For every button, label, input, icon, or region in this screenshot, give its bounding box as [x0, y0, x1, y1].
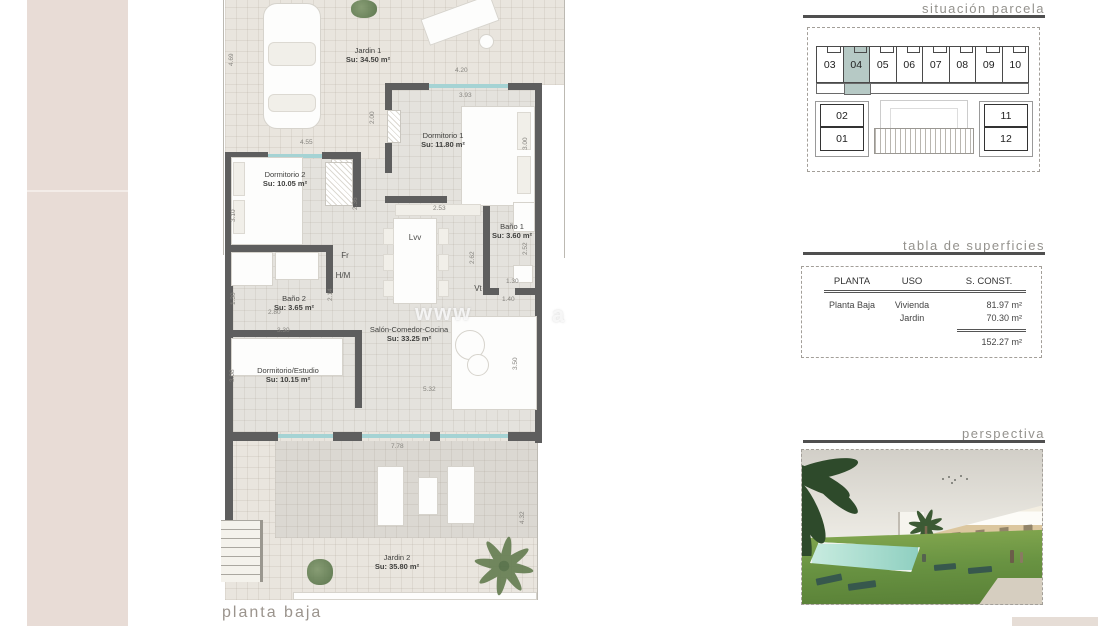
room-area: Su: 3.60 m²: [472, 231, 552, 240]
wall: [225, 330, 362, 337]
room-area: Su: 34.50 m²: [323, 55, 413, 64]
dim-label: 2.00: [370, 111, 377, 124]
wall: [228, 432, 278, 441]
unit-01: 01: [820, 127, 864, 151]
dim-label: 7.78: [391, 444, 404, 451]
unit-number: 03: [824, 59, 836, 71]
room-name: Jardin 1: [323, 46, 413, 55]
unit-04-extension: [844, 83, 871, 95]
wall: [483, 203, 490, 293]
table-cell: 70.30 m²: [932, 313, 1022, 323]
room-name: Dormitorio 1: [398, 131, 488, 140]
terrace-zone: [275, 441, 537, 538]
unit-12: 12: [984, 127, 1028, 151]
surfaces-table: PLANTA USO S. CONST. Planta Baja Viviend…: [801, 266, 1042, 358]
room-label-bano2: Baño 2 Su: 3.65 m²: [249, 294, 339, 313]
table-cell: Planta Baja: [816, 300, 888, 310]
site-plan: 03 04 05 06 07 08 09 10 02 01 11 12: [807, 27, 1040, 172]
person: [1020, 552, 1023, 563]
window: [440, 434, 508, 438]
chair: [438, 254, 449, 271]
dining-table: [393, 218, 437, 304]
plan-title: planta baja: [222, 604, 322, 622]
dim-label: 2.62: [470, 251, 477, 264]
room-area: Su: 35.80 m²: [352, 562, 442, 571]
unit-09: 09: [975, 47, 1002, 82]
unit-number: 11: [1001, 110, 1012, 122]
unit-row: 03 04 05 06 07 08 09 10: [816, 46, 1029, 83]
unit-number: 05: [877, 59, 889, 71]
table-cell: Vivienda: [887, 300, 937, 310]
watermark: www: [415, 300, 472, 326]
wall: [508, 432, 542, 441]
shower: [231, 252, 273, 286]
wall: [225, 245, 329, 252]
fixture-label-hm: H/M: [328, 271, 358, 280]
dim-label: 2.36: [353, 197, 360, 210]
coffee-table: [467, 354, 489, 376]
chair: [438, 280, 449, 297]
unit-10: 10: [1002, 47, 1029, 82]
dim-label: 1.40: [502, 297, 515, 304]
fixture-label-vt: Vt: [463, 284, 493, 293]
person: [1010, 550, 1014, 563]
dim-label: 3.00: [523, 137, 530, 150]
wall: [385, 90, 392, 110]
room-name: Dormitorio 2: [240, 170, 330, 179]
sun-lounger: [377, 466, 404, 526]
room-label-dormitorio1: Dormitorio 1 Su: 11.80 m²: [398, 131, 488, 150]
unit-11: 11: [984, 104, 1028, 127]
wall: [385, 196, 447, 203]
table-header-uso: USO: [887, 276, 937, 287]
dim-label: 3.93: [459, 93, 472, 100]
room-name: Baño 2: [249, 294, 339, 303]
dim-label: 2.53: [433, 206, 446, 213]
room-area: Su: 3.65 m²: [249, 303, 339, 312]
palm-tree-icon: [470, 532, 538, 600]
perspective-render: [801, 449, 1043, 605]
unit-number: 12: [1000, 133, 1012, 145]
unit-02: 02: [820, 104, 864, 127]
table-header-planta: PLANTA: [816, 276, 888, 287]
banana-leaves-icon: [801, 452, 880, 556]
unit-number: 07: [930, 59, 942, 71]
watermark: a: [552, 302, 566, 328]
unit-number: 08: [956, 59, 968, 71]
wall: [385, 143, 392, 173]
window: [429, 84, 508, 88]
room-label-jardin2: Jardin 2 Su: 35.80 m²: [352, 553, 442, 572]
chair: [383, 254, 394, 271]
car-windshield: [268, 42, 316, 66]
chair: [438, 228, 449, 245]
unit-06: 06: [896, 47, 923, 82]
table-cell: Jardin: [887, 313, 937, 323]
section-underline: [803, 440, 1045, 443]
dim-label: 3.30: [277, 328, 290, 335]
unit-08: 08: [949, 47, 976, 82]
unit-07: 07: [922, 47, 949, 82]
unit-number: 10: [1009, 59, 1021, 71]
room-label-bano1: Baño 1 Su: 3.60 m²: [472, 222, 552, 241]
wall: [430, 432, 440, 441]
room-area: Su: 10.05 m²: [240, 179, 330, 188]
plant: [351, 0, 377, 18]
room-name: Jardin 2: [352, 553, 442, 562]
dim-label: 1.30: [506, 279, 519, 286]
wall: [333, 432, 362, 441]
room-label-salon: Salón-Comedor-Cocina Su: 33.25 m²: [364, 325, 454, 344]
unit-number: 09: [983, 59, 995, 71]
dim-label: 5.32: [423, 387, 436, 394]
room-area: Su: 10.15 m²: [243, 375, 333, 384]
section-underline: [803, 15, 1045, 18]
side-table: [418, 477, 438, 515]
pillow: [517, 156, 531, 194]
bathroom-counter: [275, 252, 319, 280]
wall: [322, 152, 353, 159]
dim-label: 3.10: [231, 209, 238, 222]
room-name: Dormitorio/Estudio: [243, 366, 333, 375]
plant: [307, 559, 333, 585]
window: [278, 434, 333, 438]
room-name: Salón-Comedor-Cocina: [364, 325, 454, 334]
stairs: [221, 520, 263, 582]
wall: [355, 330, 362, 408]
fixture-label-fr: Fr: [330, 251, 360, 260]
dim-label: 4.55: [300, 140, 313, 147]
section-title-perspectiva: perspectiva: [962, 426, 1045, 441]
fixture-label-lvv: Lvv: [400, 233, 430, 242]
dim-label: 3.08: [230, 369, 237, 382]
unit-number: 02: [836, 110, 848, 122]
birds: [942, 478, 944, 480]
garden-chair: [479, 34, 494, 49]
table-divider: [824, 290, 1026, 293]
room-area: Su: 33.25 m²: [364, 334, 454, 343]
room-area: Su: 11.80 m²: [398, 140, 488, 149]
sun-lounger: [447, 466, 475, 524]
section-underline: [803, 252, 1045, 255]
unit-04-highlighted: 04: [843, 47, 870, 82]
unit-number: 01: [836, 133, 848, 145]
room-name: Baño 1: [472, 222, 552, 231]
section-title-situacion: situación parcela: [922, 1, 1045, 16]
dim-label: 4.69: [229, 53, 236, 66]
section-title-tabla: tabla de superficies: [903, 238, 1045, 253]
room-label-dormitorio-estudio: Dormitorio/Estudio Su: 10.15 m²: [243, 366, 333, 385]
table-total: 152.27 m²: [932, 337, 1022, 347]
car-rear-window: [268, 94, 316, 112]
table-total-divider: [957, 329, 1026, 332]
unit-number: 06: [903, 59, 915, 71]
dim-label: 4.32: [520, 511, 527, 524]
boundary-line: [564, 0, 565, 258]
dim-label: 2.80: [268, 310, 281, 317]
floor-plan: Jardin 1 Su: 34.50 m² Dormitorio 1 Su: 1…: [215, 0, 565, 600]
unit-03: 03: [817, 47, 843, 82]
room-label-jardin1: Jardin 1 Su: 34.50 m²: [323, 46, 413, 65]
wall: [385, 83, 429, 90]
boundary-line: [223, 0, 224, 255]
dim-label: 2.52: [523, 242, 530, 255]
unit-number: 04: [850, 59, 862, 71]
window: [362, 434, 430, 438]
corner-decor-block: [1012, 617, 1098, 626]
chair: [383, 228, 394, 245]
wall: [515, 288, 542, 295]
left-decor-stripe-divider: [27, 190, 128, 192]
table-header-sconst: S. CONST.: [952, 276, 1026, 287]
person: [922, 554, 926, 562]
dim-label: 3.50: [513, 357, 520, 370]
chair: [383, 280, 394, 297]
dim-label: 4.20: [455, 68, 468, 75]
dim-label: 2.14: [328, 288, 335, 301]
unit-05: 05: [869, 47, 896, 82]
dim-label: 1.30: [231, 292, 238, 305]
left-decor-stripe: [27, 0, 128, 626]
room-label-dormitorio2: Dormitorio 2 Su: 10.05 m²: [240, 170, 330, 189]
community-pool: [874, 128, 974, 154]
table-cell: 81.97 m²: [932, 300, 1022, 310]
